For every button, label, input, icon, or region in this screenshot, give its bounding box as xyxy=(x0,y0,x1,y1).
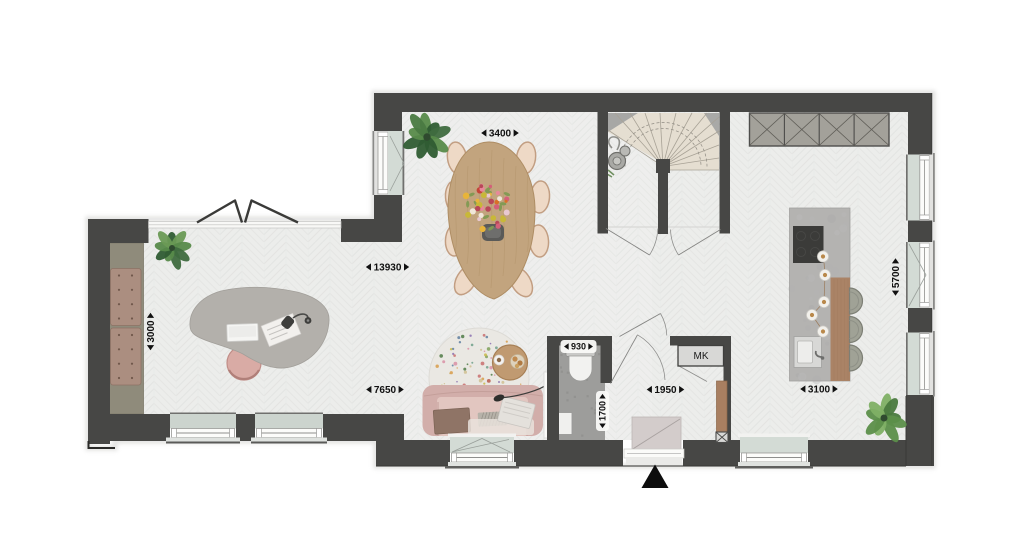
svg-text:MK: MK xyxy=(694,351,709,362)
svg-text:930: 930 xyxy=(571,342,586,352)
svg-text:3000: 3000 xyxy=(146,320,157,343)
svg-text:3400: 3400 xyxy=(489,129,512,140)
svg-text:3100: 3100 xyxy=(808,385,831,396)
svg-text:7650: 7650 xyxy=(374,385,397,396)
svg-text:13930: 13930 xyxy=(374,263,402,274)
svg-text:1950: 1950 xyxy=(654,385,677,396)
svg-text:1700: 1700 xyxy=(598,401,608,421)
svg-text:5700: 5700 xyxy=(891,265,902,288)
